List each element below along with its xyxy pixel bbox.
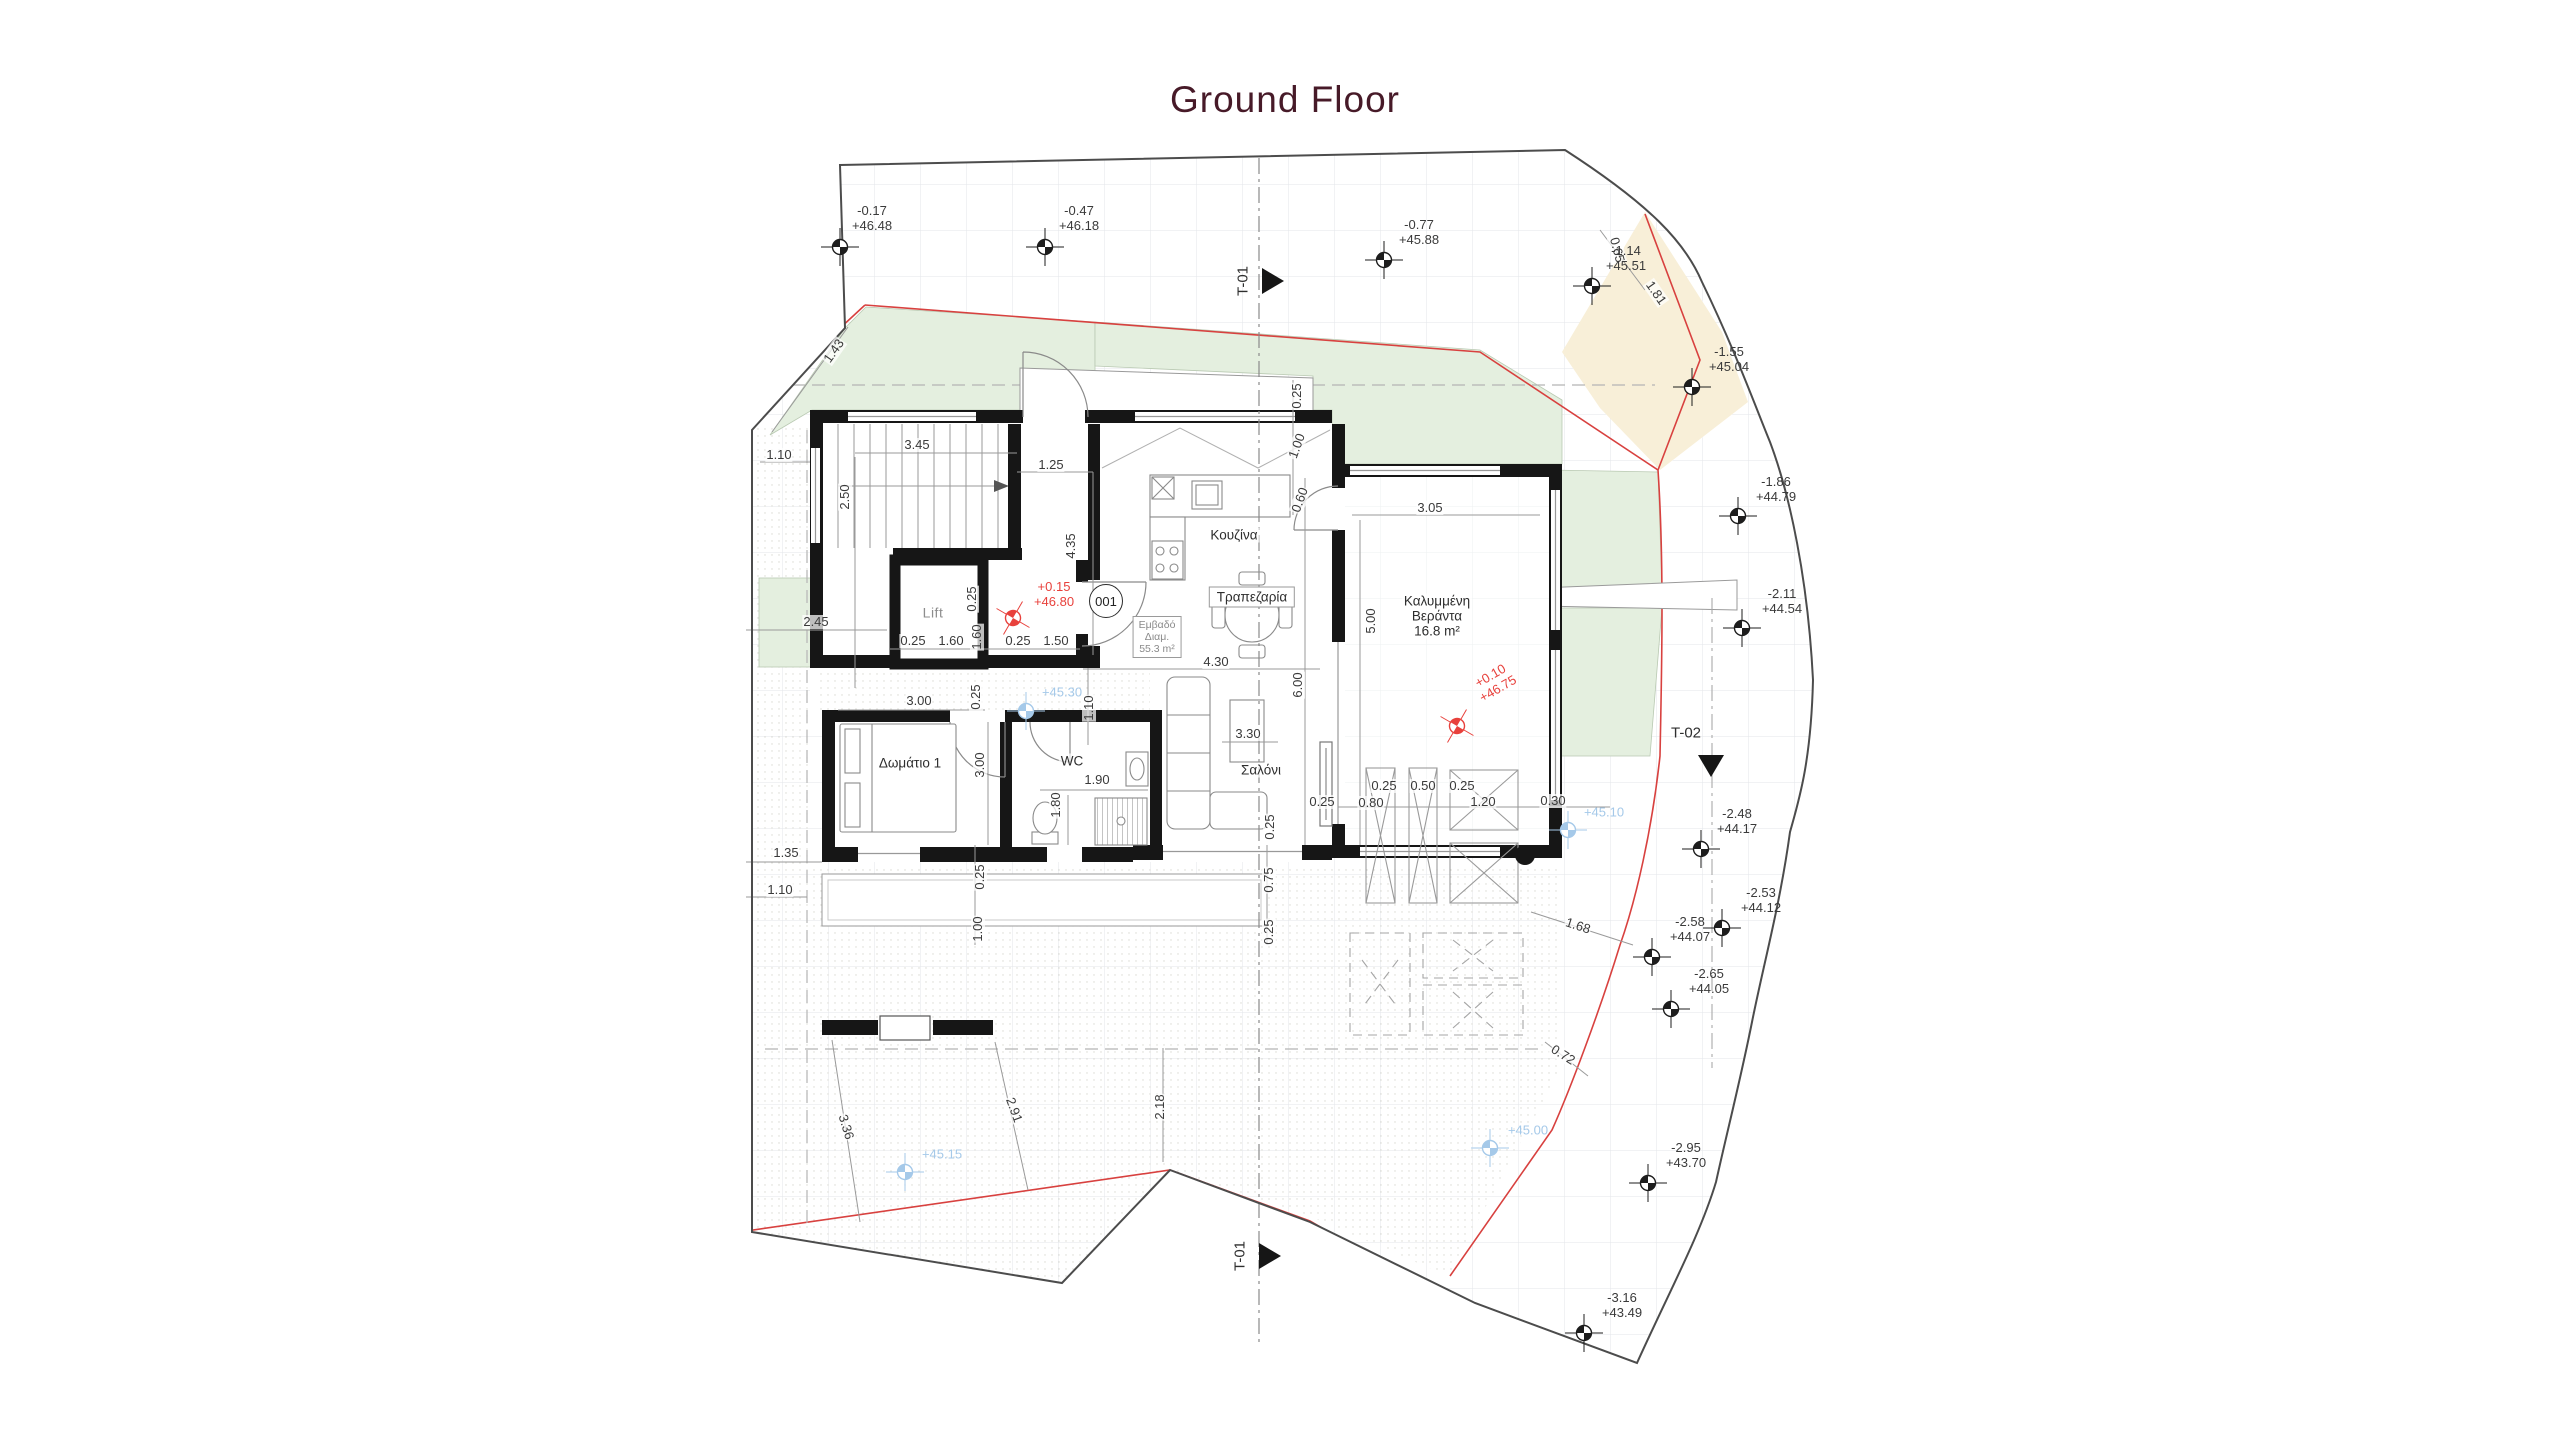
survey-point-icon xyxy=(1720,606,1764,650)
room-label-bedroom-1: Δωμάτιο 1 xyxy=(877,756,943,771)
floor-plan-page: Ground Floor 3.452.501.254.351.101.432.4… xyxy=(0,0,2560,1440)
dimension-label: 1.43 xyxy=(820,336,847,366)
dimension-label: 2.18 xyxy=(1153,1093,1167,1120)
design-level-icon xyxy=(1427,696,1487,756)
section-marker-label-t-01: T-01 xyxy=(1232,1241,1249,1271)
dimension-label: 1.10 xyxy=(1082,694,1096,721)
survey-point-label: -2.48+44.17 xyxy=(1717,806,1757,836)
dimension-label: 1.00 xyxy=(1286,431,1308,461)
dimension-label: 0.25 xyxy=(1262,918,1276,945)
survey-point-label: -2.11+44.54 xyxy=(1762,586,1802,616)
survey-point-icon xyxy=(1562,1311,1606,1355)
survey-point-icon xyxy=(1716,494,1760,538)
dimension-label: 2.45 xyxy=(802,615,829,629)
dimension-label: 4.35 xyxy=(1064,532,1078,559)
dimension-label: 3.05 xyxy=(1416,501,1443,515)
survey-point-label: -2.58+44.07 xyxy=(1670,914,1710,944)
dimension-label: 0.25 xyxy=(973,863,987,890)
level-point-label: +45.30 xyxy=(1042,685,1082,700)
level-point-label: +45.00 xyxy=(1508,1123,1548,1138)
dimension-label: 1.35 xyxy=(772,846,799,860)
level-point-label: +45.10 xyxy=(1584,805,1624,820)
dimension-label: 1.81 xyxy=(1642,278,1669,308)
survey-point-label: -1.14+45.51 xyxy=(1606,243,1646,273)
dimension-label: 0.25 xyxy=(1263,813,1277,840)
dimension-label: 3.00 xyxy=(973,751,987,778)
room-label-living: Σαλόνι xyxy=(1239,763,1283,778)
survey-point-label: -2.95+43.70 xyxy=(1666,1140,1706,1170)
dimension-label: 0.25 xyxy=(965,585,979,612)
door-tag-001: 001 xyxy=(1089,584,1123,618)
dimension-label: 2.50 xyxy=(838,483,852,510)
dimension-label: 1.60 xyxy=(937,634,964,648)
dimension-label: 1.10 xyxy=(766,883,793,897)
labels-layer: Ground Floor 3.452.501.254.351.101.432.4… xyxy=(0,0,2560,1440)
dimension-label: 0.25 xyxy=(1290,382,1304,409)
dimension-label: 0.25 xyxy=(899,634,926,648)
section-marker-label-t-01: T-01 xyxy=(1235,266,1252,296)
dimension-label: 1.20 xyxy=(1469,795,1496,809)
survey-point-icon xyxy=(1649,987,1693,1031)
room-label-lift: Lift xyxy=(921,606,946,621)
dimension-label: 1.90 xyxy=(1083,773,1110,787)
section-marker-arrow-icon xyxy=(1698,755,1724,777)
dimension-label: 0.50 xyxy=(1409,779,1436,793)
room-label-apartment-area: ΕμβαδόΔιαμ.55.3 m² xyxy=(1133,616,1182,658)
survey-point-label: -0.77+45.88 xyxy=(1399,217,1439,247)
survey-point-label: -0.17+46.48 xyxy=(852,203,892,233)
survey-point-label: -1.86+44.79 xyxy=(1756,474,1796,504)
dimension-label: 0.30 xyxy=(1539,794,1566,808)
dimension-label: 1.68 xyxy=(1563,915,1593,937)
page-title: Ground Floor xyxy=(1170,79,1400,121)
room-label-kitchen: Κουζίνα xyxy=(1208,528,1259,543)
section-marker-arrow-icon xyxy=(1262,268,1284,294)
dimension-label: 3.45 xyxy=(903,438,930,452)
dimension-label: 0.25 xyxy=(1448,779,1475,793)
dimension-label: 0.25 xyxy=(1370,779,1397,793)
dimension-label: 0.60 xyxy=(1289,485,1311,515)
dimension-label: 1.25 xyxy=(1037,458,1064,472)
dimension-label: 0.80 xyxy=(1357,796,1384,810)
survey-point-icon xyxy=(1630,935,1674,979)
dimension-label: 3.36 xyxy=(835,1112,856,1142)
survey-point-label: -2.53+44.12 xyxy=(1741,885,1781,915)
survey-point-label: -0.47+46.18 xyxy=(1059,203,1099,233)
dimension-label: 3.30 xyxy=(1234,727,1261,741)
level-point-icon xyxy=(883,1150,927,1194)
design-level-label: +0.10+46.75 xyxy=(1469,659,1519,705)
room-label-wc: WC xyxy=(1059,754,1086,769)
survey-point-label: -1.55+45.04 xyxy=(1709,344,1749,374)
survey-point-label: -3.16+43.49 xyxy=(1602,1290,1642,1320)
design-level-label: +0.15+46.80 xyxy=(1034,579,1074,609)
dimension-label: 0.25 xyxy=(969,683,983,710)
dimension-label: 5.00 xyxy=(1364,607,1378,634)
dimension-label: 1.80 xyxy=(1049,791,1063,818)
dimension-label: 6.00 xyxy=(1291,671,1305,698)
survey-point-icon xyxy=(1626,1161,1670,1205)
room-label-covered-veranda: ΚαλυμμένηΒεράντα16.8 m² xyxy=(1402,594,1472,639)
dimension-label: 1.50 xyxy=(1042,634,1069,648)
level-point-label: +45.15 xyxy=(922,1147,962,1162)
dimension-label: 0.25 xyxy=(1308,795,1335,809)
survey-point-label: -2.65+44.05 xyxy=(1689,966,1729,996)
section-marker-arrow-icon xyxy=(1259,1243,1281,1269)
dimension-label: 3.00 xyxy=(905,694,932,708)
dimension-label: 4.30 xyxy=(1202,655,1229,669)
dimension-label: 0.75 xyxy=(1262,866,1276,893)
room-label-dining: Τραπεζαρία xyxy=(1209,587,1295,608)
dimension-label: 0.72 xyxy=(1548,1042,1579,1068)
section-marker-label-t-02: T-02 xyxy=(1671,725,1701,742)
level-point-icon xyxy=(1468,1126,1512,1170)
dimension-label: 1.60 xyxy=(970,623,984,650)
survey-point-icon xyxy=(1670,365,1714,409)
dimension-label: 2.91 xyxy=(1003,1095,1025,1125)
dimension-label: 1.10 xyxy=(765,448,792,462)
dimension-label: 1.00 xyxy=(971,915,985,942)
